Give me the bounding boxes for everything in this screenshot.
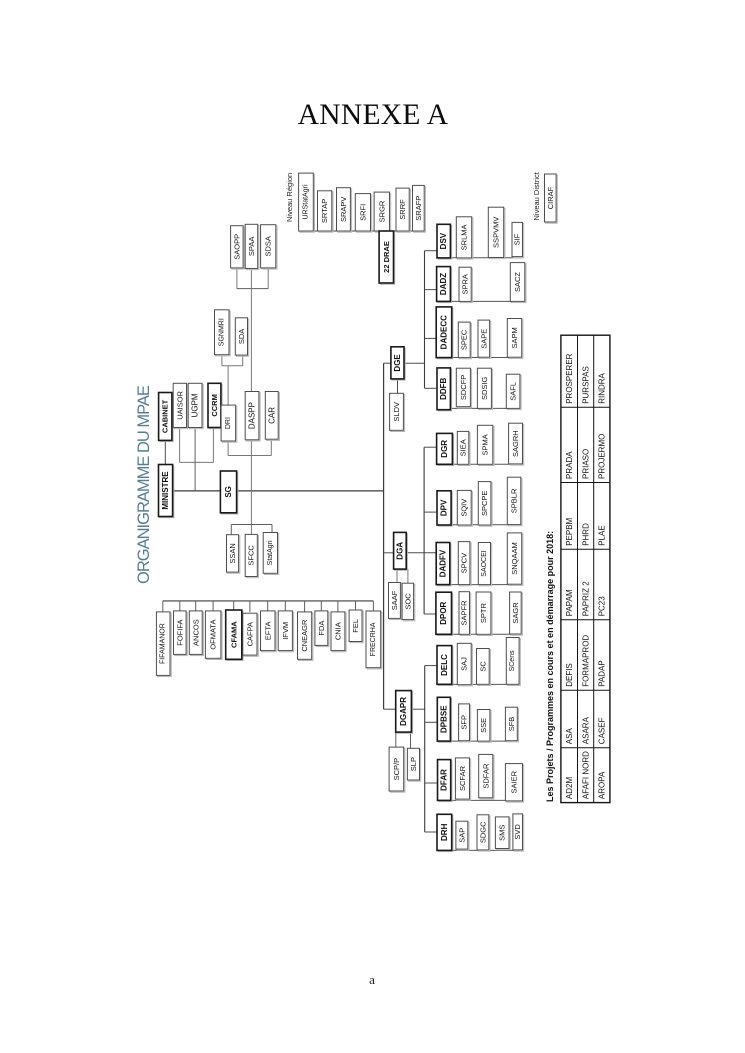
svg-text:DRI: DRI xyxy=(225,417,232,429)
svg-text:OFMATA: OFMATA xyxy=(209,620,218,650)
svg-text:CAFPA: CAFPA xyxy=(245,622,254,646)
svg-text:DGA: DGA xyxy=(395,542,404,560)
svg-text:SVD: SVD xyxy=(513,824,522,840)
svg-text:CAR: CAR xyxy=(267,407,276,424)
svg-text:SCFAR: SCFAR xyxy=(458,765,467,791)
svg-text:SQIV: SQIV xyxy=(460,499,469,517)
svg-text:SRAPV: SRAPV xyxy=(339,197,348,222)
svg-text:SRGR: SRGR xyxy=(377,200,386,222)
svg-text:UAISOR: UAISOR xyxy=(175,390,184,419)
svg-text:DPV: DPV xyxy=(440,499,449,516)
svg-text:DGE: DGE xyxy=(393,354,402,372)
svg-text:SOC: SOC xyxy=(403,593,412,610)
svg-text:PC23: PC23 xyxy=(598,596,607,617)
svg-text:SPMA: SPMA xyxy=(481,434,490,455)
svg-text:CCRM: CCRM xyxy=(210,394,219,417)
svg-text:AD2M: AD2M xyxy=(565,777,574,800)
svg-text:SPCV: SPCV xyxy=(460,553,469,573)
svg-text:PLAE: PLAE xyxy=(598,525,607,545)
svg-text:ANNEXE A: ANNEXE A xyxy=(298,99,449,131)
svg-text:SPBLR: SPBLR xyxy=(510,488,519,513)
svg-text:DGAPR: DGAPR xyxy=(399,697,408,726)
svg-text:DSV: DSV xyxy=(439,232,448,249)
svg-text:ORGANIGRAMME DU MPAE: ORGANIGRAMME DU MPAE xyxy=(135,385,153,584)
svg-text:PEPBM: PEPBM xyxy=(565,517,574,545)
svg-text:SAPE: SAPE xyxy=(479,329,488,349)
svg-text:ASA: ASA xyxy=(565,728,574,745)
svg-text:SG: SG xyxy=(224,486,233,498)
svg-text:SPAA: SPAA xyxy=(247,237,256,256)
svg-text:CASEF: CASEF xyxy=(598,717,607,744)
svg-text:PADAP: PADAP xyxy=(598,660,607,687)
svg-text:SFB: SFB xyxy=(507,717,516,732)
svg-text:SRFI: SRFI xyxy=(358,204,367,221)
svg-text:FRECRHA: FRECRHA xyxy=(370,622,377,656)
svg-text:SC: SC xyxy=(478,661,487,672)
svg-text:CNEAGR: CNEAGR xyxy=(300,619,309,652)
svg-text:PHRD: PHRD xyxy=(581,523,590,546)
svg-text:EFTA: EFTA xyxy=(263,621,272,640)
svg-text:FOFIFA: FOFIFA xyxy=(175,619,184,645)
svg-text:FDA: FDA xyxy=(317,621,326,636)
svg-text:SSAN: SSAN xyxy=(228,543,237,563)
svg-text:SLP: SLP xyxy=(409,757,418,771)
svg-text:SDFAR: SDFAR xyxy=(481,763,490,789)
svg-text:Les Projets / Programmes en co: Les Projets / Programmes en cours et en … xyxy=(545,531,555,802)
svg-text:SDSA: SDSA xyxy=(264,236,273,256)
svg-text:22 DRAE: 22 DRAE xyxy=(382,241,391,273)
svg-text:Niveau Région: Niveau Région xyxy=(285,173,294,222)
svg-text:SAAF: SAAF xyxy=(390,590,399,610)
svg-text:SFCC: SFCC xyxy=(247,545,256,566)
svg-text:SCP/P: SCP/P xyxy=(392,758,401,781)
svg-text:SNQAAM: SNQAAM xyxy=(510,542,519,575)
svg-text:DFAR: DFAR xyxy=(440,769,449,791)
svg-text:SDGC: SDGC xyxy=(478,821,487,843)
svg-text:SAP: SAP xyxy=(457,828,466,843)
svg-text:CIRAF: CIRAF xyxy=(546,186,555,209)
svg-text:DEFIS: DEFIS xyxy=(565,663,574,687)
svg-text:AROPA: AROPA xyxy=(598,771,607,799)
svg-text:DADFV: DADFV xyxy=(439,549,448,577)
svg-text:SFP: SFP xyxy=(460,715,469,730)
svg-text:SIF: SIF xyxy=(513,233,522,245)
svg-text:AFAFI NORD: AFAFI NORD xyxy=(581,751,590,799)
svg-text:Niveau District: Niveau District xyxy=(532,171,541,220)
svg-text:SAPM: SAPM xyxy=(510,327,519,348)
svg-text:FORMAPROD: FORMAPROD xyxy=(581,635,590,687)
svg-text:SDCFP: SDCFP xyxy=(459,375,468,400)
svg-text:URStatAgri: URStatAgri xyxy=(303,184,310,219)
svg-text:DPBSE: DPBSE xyxy=(439,705,448,733)
svg-text:SAJ: SAJ xyxy=(460,657,469,671)
svg-text:UGPM: UGPM xyxy=(191,393,200,417)
svg-text:SAGRH: SAGRH xyxy=(511,430,520,457)
svg-text:CFAMA: CFAMA xyxy=(229,621,238,648)
svg-text:DDFB: DDFB xyxy=(439,377,448,399)
svg-text:SAFL: SAFL xyxy=(509,382,518,401)
svg-text:SRLMA: SRLMA xyxy=(460,224,469,250)
svg-text:SRTAP: SRTAP xyxy=(320,199,329,223)
svg-text:SSE: SSE xyxy=(479,718,488,733)
svg-text:a: a xyxy=(369,972,375,987)
svg-text:ASARA: ASARA xyxy=(581,716,590,744)
svg-text:PROSPERER: PROSPERER xyxy=(565,353,574,403)
svg-text:PAPRIZ 2: PAPRIZ 2 xyxy=(581,581,590,617)
svg-text:IFVM: IFVM xyxy=(281,622,290,640)
svg-text:DASPP: DASPP xyxy=(248,402,257,429)
svg-text:SAOPP: SAOPP xyxy=(232,234,241,260)
svg-text:FIFAMANOR: FIFAMANOR xyxy=(160,623,167,664)
svg-text:SAOCEI: SAOCEI xyxy=(481,550,488,577)
svg-text:SAIER: SAIER xyxy=(509,770,518,793)
svg-text:StatAgri: StatAgri xyxy=(267,540,274,565)
svg-text:SSPVMV: SSPVMV xyxy=(492,217,501,248)
svg-text:SDA: SDA xyxy=(237,329,246,344)
svg-text:SPEC: SPEC xyxy=(460,329,469,350)
svg-text:SCens: SCens xyxy=(509,650,516,672)
svg-text:ANCOS: ANCOS xyxy=(191,619,200,646)
svg-text:SPRA: SPRA xyxy=(461,274,470,294)
svg-text:SMS: SMS xyxy=(498,825,507,841)
svg-text:PRADA: PRADA xyxy=(565,451,574,479)
svg-text:PAPAM: PAPAM xyxy=(565,589,574,616)
svg-text:SAGR: SAGR xyxy=(511,602,520,624)
svg-text:DRH: DRH xyxy=(440,823,449,841)
svg-text:SPTR: SPTR xyxy=(479,603,488,624)
svg-text:SRRF: SRRF xyxy=(398,199,407,220)
svg-text:CNIA: CNIA xyxy=(333,622,342,640)
svg-text:PRIASO: PRIASO xyxy=(581,449,590,479)
svg-text:DGR: DGR xyxy=(440,440,449,458)
svg-text:RINDRA: RINDRA xyxy=(598,372,607,403)
svg-text:SAPFR: SAPFR xyxy=(460,600,469,626)
svg-text:SDSIG: SDSIG xyxy=(480,376,489,400)
svg-text:SGNMRI: SGNMRI xyxy=(218,318,225,346)
svg-text:SLDV: SLDV xyxy=(392,402,401,422)
svg-text:PURSPAS: PURSPAS xyxy=(581,366,590,404)
svg-text:DADZ: DADZ xyxy=(439,273,448,295)
svg-text:FEL: FEL xyxy=(351,619,360,633)
svg-text:SPCPE: SPCPE xyxy=(480,491,489,516)
svg-text:SIEA: SIEA xyxy=(459,439,468,456)
svg-text:DADECC: DADECC xyxy=(439,315,448,349)
svg-text:MINISTRE: MINISTRE xyxy=(161,471,170,510)
svg-text:CABINET: CABINET xyxy=(161,399,170,433)
svg-text:DPOR: DPOR xyxy=(439,601,448,624)
svg-text:PROJERMO: PROJERMO xyxy=(598,434,607,479)
svg-text:DELC: DELC xyxy=(440,654,449,676)
svg-text:SRAFP: SRAFP xyxy=(414,196,423,221)
svg-text:SACZ: SACZ xyxy=(513,272,522,292)
